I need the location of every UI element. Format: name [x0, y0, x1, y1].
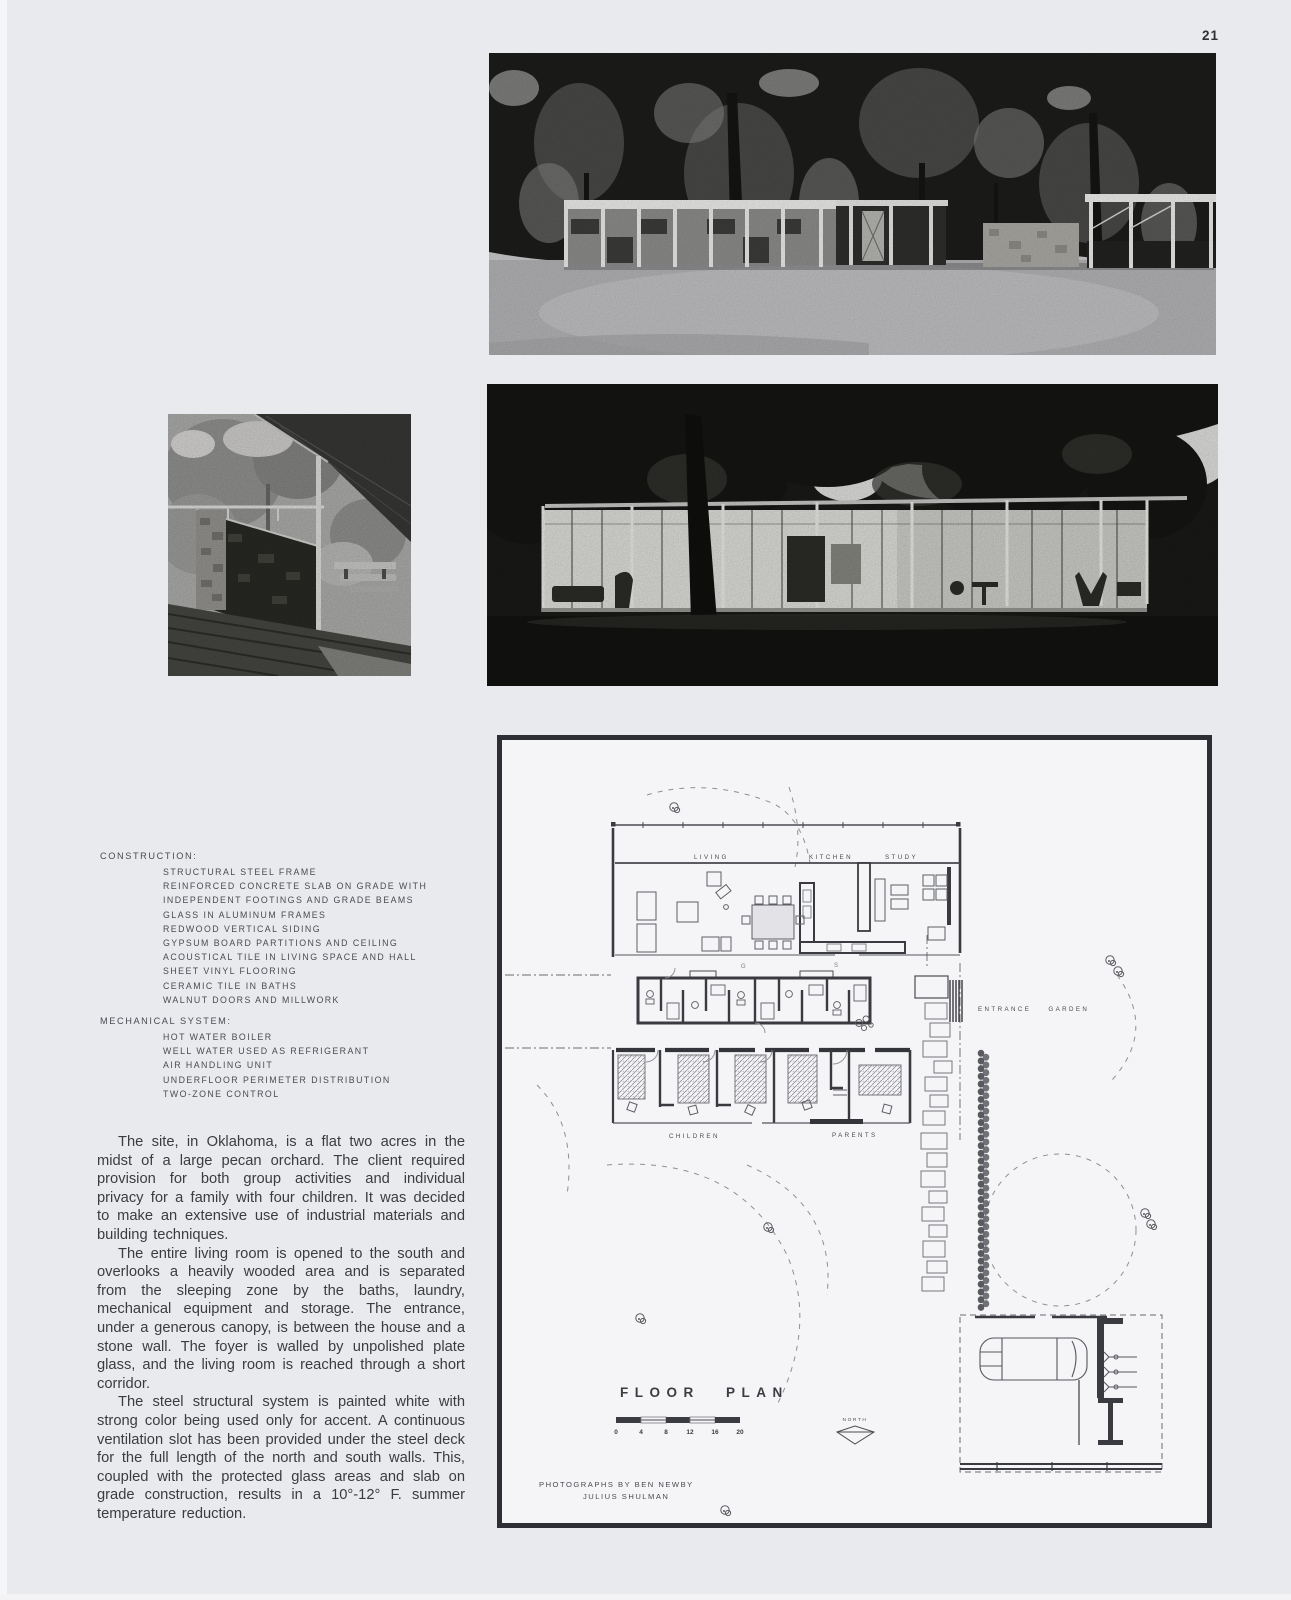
- scale-tick: 0: [614, 1429, 618, 1436]
- scale-tick: 20: [736, 1429, 744, 1436]
- list-item: GYPSUM BOARD PARTITIONS AND CEILING: [163, 936, 484, 950]
- paragraph: The entire living room is opened to the …: [97, 1245, 465, 1394]
- mechanical-heading: MECHANICAL SYSTEM:: [100, 1014, 484, 1029]
- credit-line: JULIUS SHULMAN: [583, 1492, 669, 1501]
- list-item: HOT WATER BOILER: [163, 1030, 484, 1044]
- list-item: WALNUT DOORS AND MILLWORK: [163, 993, 484, 1007]
- kitchen-study-wall: [858, 863, 870, 931]
- photo-exterior-day-art: [489, 53, 1216, 355]
- list-item: REDWOOD VERTICAL SIDING: [163, 922, 484, 936]
- scan-edge-left: [0, 0, 7, 1600]
- scan-edge-bottom: [0, 1594, 1291, 1600]
- spec-lists: CONSTRUCTION: STRUCTURAL STEEL FRAME REI…: [100, 849, 484, 1101]
- photo-exterior-dusk-art: [487, 384, 1218, 686]
- article-text: The site, in Oklahoma, is a flat two acr…: [97, 1133, 465, 1523]
- photo-entrance-art: [168, 414, 411, 676]
- list-item: ACOUSTICAL TILE IN LIVING SPACE AND HALL: [163, 950, 484, 964]
- credit-line: PHOTOGRAPHS BY BEN NEWBY: [539, 1480, 694, 1489]
- scale-tick: 8: [664, 1429, 668, 1436]
- list-item: STRUCTURAL STEEL FRAME: [163, 865, 484, 879]
- construction-heading: CONSTRUCTION:: [100, 849, 484, 864]
- list-item: SHEET VINYL FLOORING: [163, 964, 484, 978]
- film-grain: [489, 53, 1216, 355]
- list-item: GLASS IN ALUMINUM FRAMES: [163, 908, 484, 922]
- page-number: 21: [1202, 28, 1219, 43]
- label-kitchen: KITCHEN: [809, 854, 853, 861]
- film-grain: [168, 414, 411, 676]
- floor-plan-drawing: G S: [497, 735, 1212, 1528]
- film-grain: [487, 384, 1218, 686]
- photo-exterior-day: [489, 53, 1216, 355]
- floor-plan-panel: G S: [497, 735, 1212, 1528]
- list-item: CERAMIC TILE IN BATHS: [163, 979, 484, 993]
- label-living: LIVING: [694, 854, 729, 861]
- stone-wall-plan: [981, 1053, 986, 1309]
- list-item: REINFORCED CONCRETE SLAB ON GRADE WITH: [163, 879, 484, 893]
- list-item: WELL WATER USED AS REFRIGERANT: [163, 1044, 484, 1058]
- scale-tick: 4: [639, 1429, 643, 1436]
- mark-g: G: [741, 964, 746, 970]
- label-children: CHILDREN: [669, 1133, 720, 1140]
- label-parents: PARENTS: [832, 1132, 878, 1139]
- scale-tick: 16: [711, 1429, 719, 1436]
- photo-exterior-dusk: [487, 384, 1218, 686]
- list-item: UNDERFLOOR PERIMETER DISTRIBUTION: [163, 1073, 484, 1087]
- magazine-page: 21: [0, 0, 1291, 1600]
- mark-s: S: [834, 963, 838, 969]
- north-label: NORTH: [843, 1417, 868, 1423]
- list-item: AIR HANDLING UNIT: [163, 1058, 484, 1072]
- mechanical-list: HOT WATER BOILER WELL WATER USED AS REFR…: [163, 1030, 484, 1101]
- label-entrance-garden: ENTRANCE GARDEN: [978, 1006, 1089, 1013]
- construction-list: STRUCTURAL STEEL FRAME REINFORCED CONCRE…: [163, 865, 484, 1007]
- photo-entrance: [168, 414, 411, 676]
- paragraph: The site, in Oklahoma, is a flat two acr…: [97, 1133, 465, 1245]
- scale-tick: 12: [686, 1429, 694, 1436]
- list-item: INDEPENDENT FOOTINGS AND GRADE BEAMS: [163, 893, 484, 907]
- label-study: STUDY: [885, 854, 918, 861]
- paragraph: The steel structural system is painted w…: [97, 1393, 465, 1523]
- plan-title: FLOOR PLAN: [620, 1385, 789, 1400]
- list-item: TWO-ZONE CONTROL: [163, 1087, 484, 1101]
